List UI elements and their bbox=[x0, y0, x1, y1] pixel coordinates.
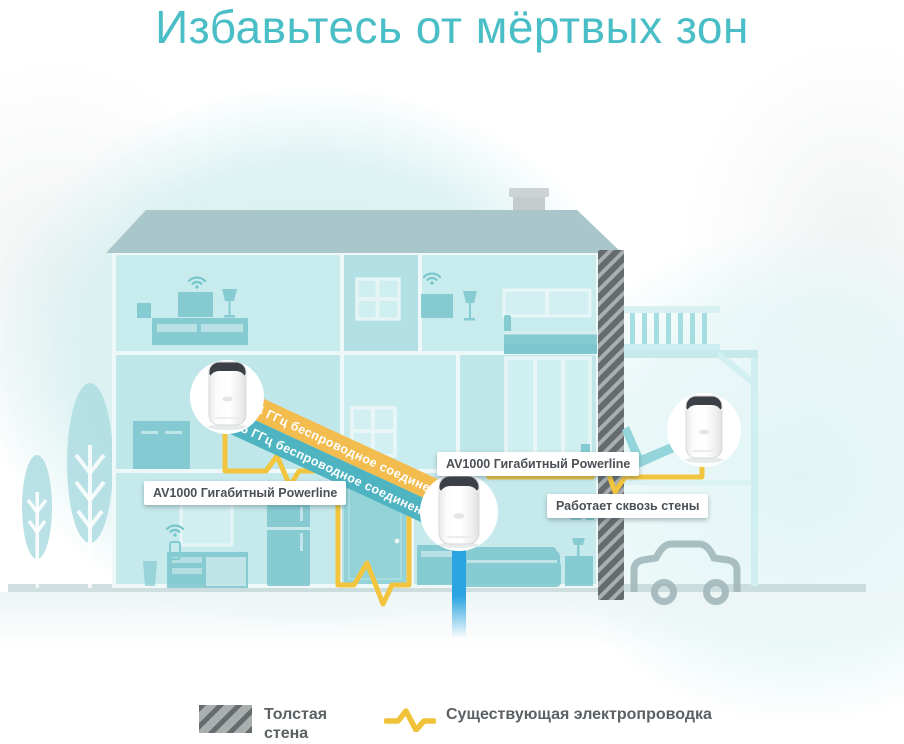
page: Избавьтесь от мёртвых зон bbox=[0, 0, 904, 744]
hatched-swatch-icon bbox=[199, 705, 252, 733]
callout-through-walls: Работает сквозь стены bbox=[547, 494, 708, 518]
callout-powerline-left: AV1000 Гигабитный Powerline bbox=[144, 481, 346, 505]
yellow-zigzag-icon bbox=[384, 708, 436, 732]
mesh-device-icon-left bbox=[190, 360, 264, 434]
callout-powerline-center: AV1000 Гигабитный Powerline bbox=[437, 452, 639, 476]
legend-thick-wall-label: Толстая стена bbox=[264, 705, 352, 743]
house-illustration: 2.4 ГГц беспроводное соединение 5 ГГц бе… bbox=[0, 0, 904, 744]
mesh-device-icon-right bbox=[667, 393, 741, 467]
house-cross-section-illustration: 2.4 ГГц беспроводное соединение 5 ГГц бе… bbox=[0, 0, 904, 744]
internet-line bbox=[452, 544, 466, 638]
legend-thick-wall: Толстая стена bbox=[199, 705, 352, 743]
legend-existing-wiring: Существующая электропроводка bbox=[384, 705, 712, 732]
legend: Толстая стена Существующая электропровод… bbox=[0, 703, 904, 743]
mesh-device-icon-center bbox=[420, 473, 498, 551]
legend-existing-wiring-label: Существующая электропроводка bbox=[446, 705, 712, 724]
hatched-wall bbox=[598, 250, 624, 600]
